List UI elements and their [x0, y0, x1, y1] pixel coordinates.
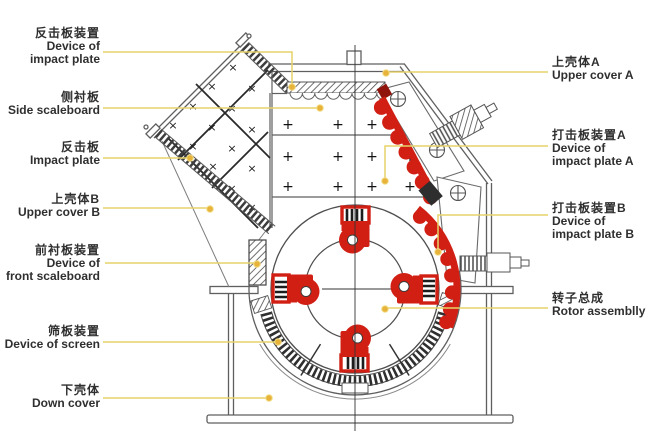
label-cn: 前衬板装置	[2, 244, 100, 257]
label-impact-plate-a-device: 打击板装置A Device of impact plate A	[552, 129, 648, 167]
label-down-cover: 下壳体 Down cover	[2, 384, 100, 410]
label-en: Upper cover B	[2, 206, 100, 219]
svg-text:×: ×	[188, 140, 197, 153]
label-cn: 上壳体B	[2, 193, 100, 206]
svg-text:+: +	[366, 117, 378, 133]
label-rotor-assembly: 转子总成 Rotor assemblly	[552, 292, 648, 318]
svg-text:+: +	[332, 149, 344, 165]
impact-plate-strips	[155, 42, 294, 233]
svg-text:×: ×	[247, 123, 256, 136]
label-impact-plate: 反击板 Impact plate	[2, 141, 100, 167]
svg-text:+: +	[366, 179, 378, 195]
label-cn: 反击板	[2, 141, 100, 154]
top-grate-bar	[287, 82, 389, 99]
svg-text:×: ×	[227, 142, 236, 155]
svg-text:×: ×	[247, 162, 256, 175]
label-en: Down cover	[2, 397, 100, 410]
label-en: Device of screen	[2, 338, 100, 351]
label-en: impact plate B	[552, 228, 648, 241]
label-upper-cover-a: 上壳体A Upper cover A	[552, 56, 648, 82]
svg-text:×: ×	[207, 80, 216, 93]
label-en: Device of	[2, 40, 100, 53]
label-en: Device of	[552, 142, 648, 155]
label-en: Rotor assemblly	[552, 305, 648, 318]
label-en: impact plate	[2, 53, 100, 66]
label-upper-cover-b: 上壳体B Upper cover B	[2, 193, 100, 219]
svg-text:×: ×	[247, 82, 256, 95]
label-en: Device of	[552, 215, 648, 228]
label-cn: 打击板装置B	[552, 202, 648, 215]
svg-text:+: +	[332, 117, 344, 133]
label-side-scaleboard: 侧衬板 Side scaleboard	[2, 91, 100, 117]
svg-text:+: +	[282, 179, 294, 195]
label-cn: 上壳体A	[552, 56, 648, 69]
label-en: impact plate A	[552, 155, 648, 168]
svg-text:×: ×	[228, 61, 237, 74]
side-scaleboard-panel: ××× ××× ××× ××× ××	[168, 61, 270, 228]
svg-text:+: +	[404, 179, 416, 195]
label-cn: 转子总成	[552, 292, 648, 305]
label-cn: 筛板装置	[2, 325, 100, 338]
label-screen-device: 筛板装置 Device of screen	[2, 325, 100, 351]
label-cn: 反击板装置	[2, 27, 100, 40]
crusher-diagram: ××× ××× ××× ××× ×× ++++ ++++ ++++	[0, 0, 650, 442]
svg-text:+: +	[282, 117, 294, 133]
tension-rod-b	[460, 253, 529, 272]
label-cn: 下壳体	[2, 384, 100, 397]
svg-text:+: +	[366, 149, 378, 165]
svg-text:+: +	[282, 149, 294, 165]
svg-text:×: ×	[188, 100, 197, 113]
label-cn: 打击板装置A	[552, 129, 648, 142]
label-en: Impact plate	[2, 154, 100, 167]
svg-text:+: +	[332, 179, 344, 195]
label-cn: 侧衬板	[2, 91, 100, 104]
label-impact-plate-device: 反击板装置 Device of impact plate	[2, 27, 100, 65]
label-en: Side scaleboard	[2, 104, 100, 117]
svg-text:×: ×	[168, 119, 177, 132]
svg-text:×: ×	[207, 121, 216, 134]
label-en: Upper cover A	[552, 69, 648, 82]
label-front-scaleboard-device: 前衬板装置 Device of front scaleboard	[2, 244, 100, 282]
label-en: Device of	[2, 257, 100, 270]
label-en: front scaleboard	[2, 270, 100, 283]
label-impact-plate-b-device: 打击板装置B Device of impact plate B	[552, 202, 648, 240]
leader-lines	[103, 52, 548, 398]
